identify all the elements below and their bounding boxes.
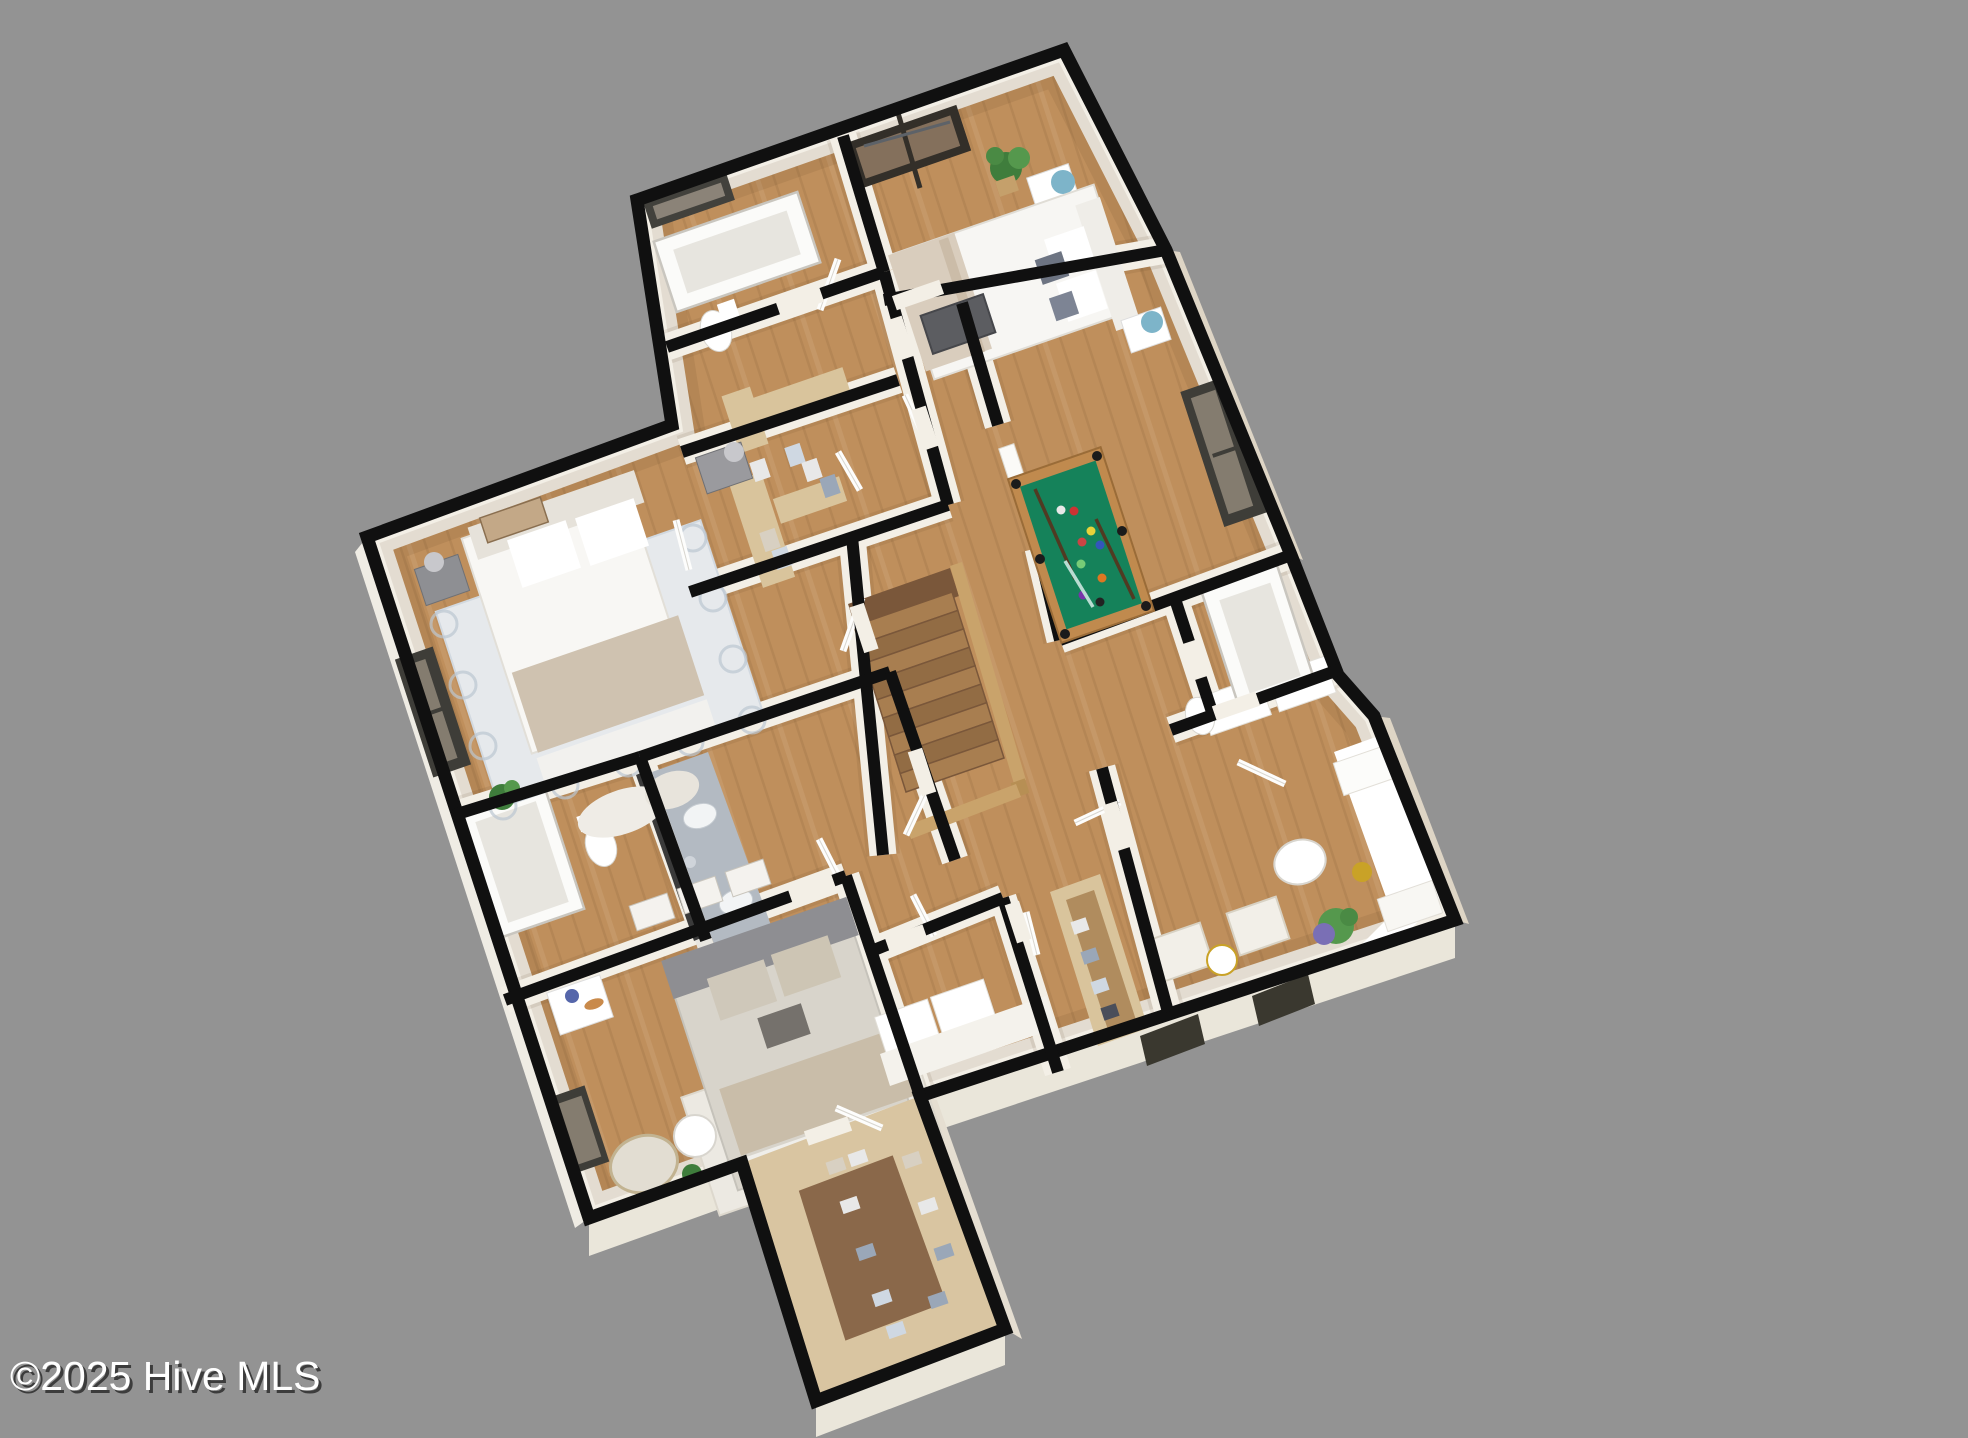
- svg-text:©2025 Hive MLS: ©2025 Hive MLS: [10, 1353, 321, 1399]
